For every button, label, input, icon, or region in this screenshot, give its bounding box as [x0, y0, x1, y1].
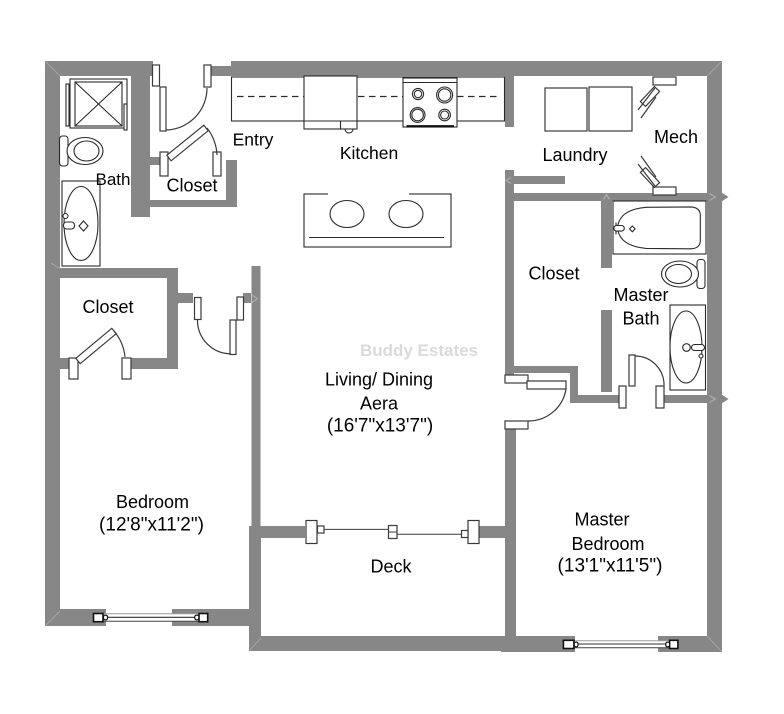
svg-text:Master: Master	[613, 285, 668, 305]
svg-text:Laundry: Laundry	[542, 145, 607, 165]
svg-text:(12'8"x11'2"): (12'8"x11'2")	[99, 515, 204, 536]
svg-text:Bedroom: Bedroom	[116, 492, 189, 512]
svg-text:Bath: Bath	[96, 170, 131, 189]
svg-text:Buddy Estates: Buddy Estates	[360, 341, 478, 360]
svg-text:Closet: Closet	[528, 264, 579, 284]
svg-text:(16'7"x13'7"): (16'7"x13'7")	[327, 416, 433, 437]
svg-text:(13'1"x11'5"): (13'1"x11'5")	[558, 556, 663, 577]
svg-text:Deck: Deck	[370, 557, 412, 577]
svg-text:Entry: Entry	[233, 130, 274, 150]
svg-text:Mech: Mech	[654, 127, 698, 147]
svg-text:Closet: Closet	[166, 176, 217, 196]
svg-text:Living/ Dining: Living/ Dining	[325, 370, 433, 390]
svg-text:Kitchen: Kitchen	[340, 143, 398, 163]
svg-text:Bath: Bath	[622, 309, 659, 329]
svg-text:Aera: Aera	[360, 394, 399, 414]
svg-text:Bedroom: Bedroom	[571, 534, 644, 554]
svg-text:Closet: Closet	[82, 297, 133, 317]
svg-text:Master: Master	[574, 510, 629, 530]
